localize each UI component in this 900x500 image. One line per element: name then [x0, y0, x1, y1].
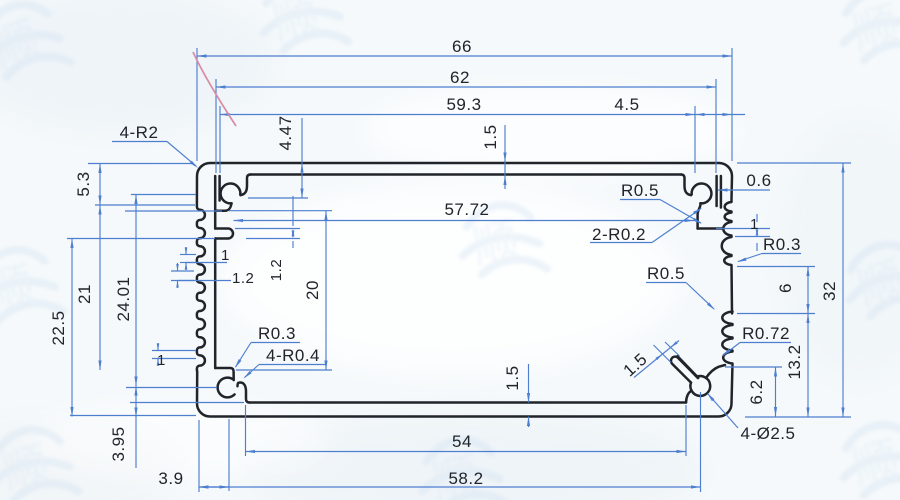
svg-text:0.6: 0.6	[746, 171, 771, 190]
svg-text:4.5: 4.5	[614, 95, 639, 114]
svg-text:R0.3: R0.3	[763, 235, 801, 254]
svg-text:66: 66	[452, 37, 472, 56]
svg-text:1: 1	[157, 352, 166, 369]
svg-text:4.47: 4.47	[276, 115, 295, 150]
svg-text:1.5: 1.5	[481, 124, 500, 149]
svg-text:58.2: 58.2	[448, 469, 483, 488]
svg-text:3.9: 3.9	[158, 469, 183, 488]
svg-text:1.2: 1.2	[268, 259, 285, 281]
svg-text:22.5: 22.5	[49, 310, 68, 345]
svg-text:5.3: 5.3	[74, 171, 93, 196]
svg-text:R0.3: R0.3	[258, 324, 296, 343]
svg-text:59.3: 59.3	[446, 95, 481, 114]
svg-text:1.5: 1.5	[503, 365, 522, 390]
svg-text:1.2: 1.2	[232, 270, 254, 287]
svg-text:20: 20	[303, 280, 322, 300]
svg-text:32: 32	[820, 281, 839, 301]
svg-text:62: 62	[450, 68, 470, 87]
svg-text:13.2: 13.2	[785, 344, 804, 379]
svg-text:R0.72: R0.72	[742, 324, 790, 343]
svg-text:1: 1	[750, 216, 759, 233]
svg-text:4-R2: 4-R2	[120, 123, 159, 142]
svg-text:R0.5: R0.5	[621, 181, 659, 200]
svg-text:6: 6	[776, 283, 795, 293]
svg-text:R0.5: R0.5	[647, 264, 685, 283]
svg-text:54: 54	[452, 432, 472, 451]
svg-text:3.95: 3.95	[109, 426, 128, 461]
svg-text:1: 1	[221, 247, 230, 264]
svg-text:21: 21	[75, 284, 94, 304]
svg-text:4-Ø2.5: 4-Ø2.5	[741, 424, 796, 443]
svg-text:2-R0.2: 2-R0.2	[592, 225, 646, 244]
svg-text:4-R0.4: 4-R0.4	[266, 346, 320, 365]
svg-text:57.72: 57.72	[444, 200, 489, 219]
svg-text:24.01: 24.01	[114, 276, 133, 321]
svg-text:6.2: 6.2	[747, 379, 766, 404]
